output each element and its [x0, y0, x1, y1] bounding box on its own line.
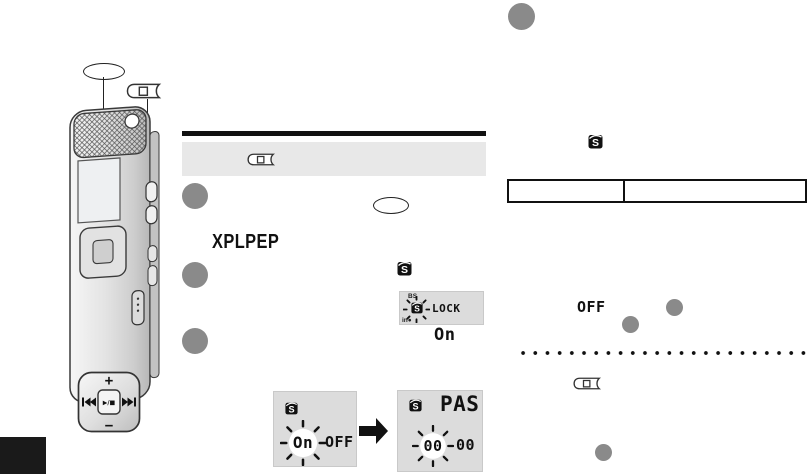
- hold-slider: [132, 290, 144, 325]
- dpad-enlarged: + − ▶/■: [77, 371, 141, 433]
- security-icon: S: [397, 259, 412, 276]
- play-stop-label: ▶/■: [103, 400, 116, 407]
- page-corner-tab: [0, 437, 46, 474]
- security-icon: S: [411, 300, 423, 314]
- button-callout-ellipse: [83, 63, 125, 80]
- lcd-code-rest: 00: [456, 438, 475, 453]
- recorder-illustration: [60, 90, 164, 402]
- side-button: [146, 205, 157, 224]
- dotted-separator: [517, 350, 809, 356]
- security-icon: S: [588, 132, 603, 149]
- reference-circle: [622, 316, 639, 333]
- stop-button-icon: [247, 152, 277, 167]
- dpad-minus-label: −: [105, 418, 113, 433]
- reference-circle: [595, 444, 612, 461]
- manual-page: + − ▶/■ XPLPEP S BS: [0, 0, 811, 474]
- side-button: [148, 265, 157, 286]
- section-rule: [182, 131, 486, 136]
- off-value: OFF: [577, 300, 606, 315]
- step-circle: [508, 3, 535, 30]
- lcd-lock-label: LOCK: [432, 303, 461, 314]
- recorder-display: [78, 158, 120, 223]
- security-icon: S: [285, 400, 298, 415]
- lcd-screen-lock: BS S LOCK in●: [399, 291, 484, 325]
- reference-circle: [666, 299, 683, 316]
- info-table: [507, 179, 807, 203]
- security-icon: S: [409, 397, 422, 412]
- step-circle: [182, 183, 208, 209]
- svg-text:S: S: [414, 303, 420, 313]
- blinking-on-value: On: [280, 420, 326, 466]
- button-callout-ellipse: [373, 197, 409, 214]
- lcd-on-value: On: [434, 327, 455, 344]
- step-circle: [182, 328, 208, 354]
- arrow-right-icon: [359, 417, 389, 445]
- lcd-off-value: OFF: [325, 435, 354, 450]
- svg-text:S: S: [288, 404, 294, 414]
- mic-hole: [125, 114, 139, 129]
- lcd-screen-password: S PAS 00 00: [397, 390, 483, 472]
- svg-text:S: S: [412, 401, 418, 411]
- recorder-dpad-center: [93, 239, 113, 263]
- stop-button-icon: [573, 376, 603, 391]
- dpad-plus-label: +: [105, 373, 113, 389]
- blinking-code-digits: 00: [412, 425, 454, 467]
- lcd-screen-onoff: S On OFF: [273, 391, 357, 467]
- step-circle: [182, 262, 208, 288]
- lcd-pass-title: PAS: [440, 394, 479, 415]
- side-button: [148, 245, 157, 262]
- recording-mode-label: XPLPEP: [212, 231, 279, 254]
- instruction-panel: [182, 142, 486, 176]
- svg-text:S: S: [401, 264, 408, 276]
- info-table-cell: [624, 180, 806, 202]
- side-stop-button: [146, 181, 157, 202]
- svg-text:S: S: [592, 137, 599, 149]
- info-table-cell: [508, 180, 624, 202]
